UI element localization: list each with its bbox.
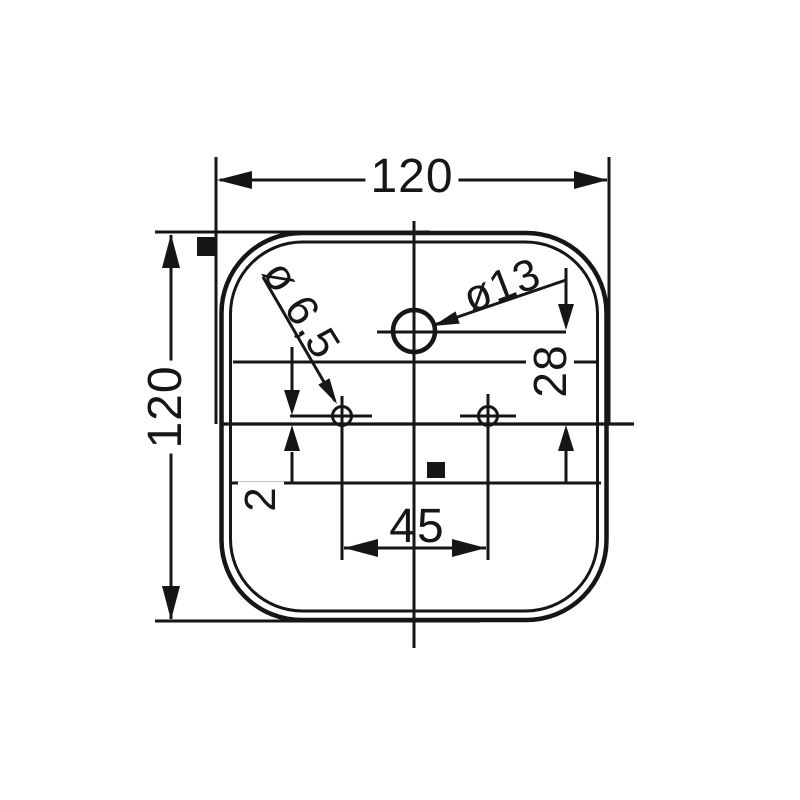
- dim-label-hole-spacing: 45: [389, 503, 444, 551]
- dim-label-large-hole-offset: 28: [526, 339, 574, 402]
- dim-label-width-top: 120: [365, 152, 458, 202]
- dim-label-height-left: 120: [141, 360, 191, 453]
- dim-label-small-hole-offset: 2: [238, 481, 284, 516]
- technical-drawing: 120 120 45 28 2 ø13 ø 6,5: [0, 0, 800, 800]
- marker-square-top-left: [197, 237, 217, 256]
- marker-square-center: [427, 462, 445, 478]
- drawing-linework: [0, 0, 800, 800]
